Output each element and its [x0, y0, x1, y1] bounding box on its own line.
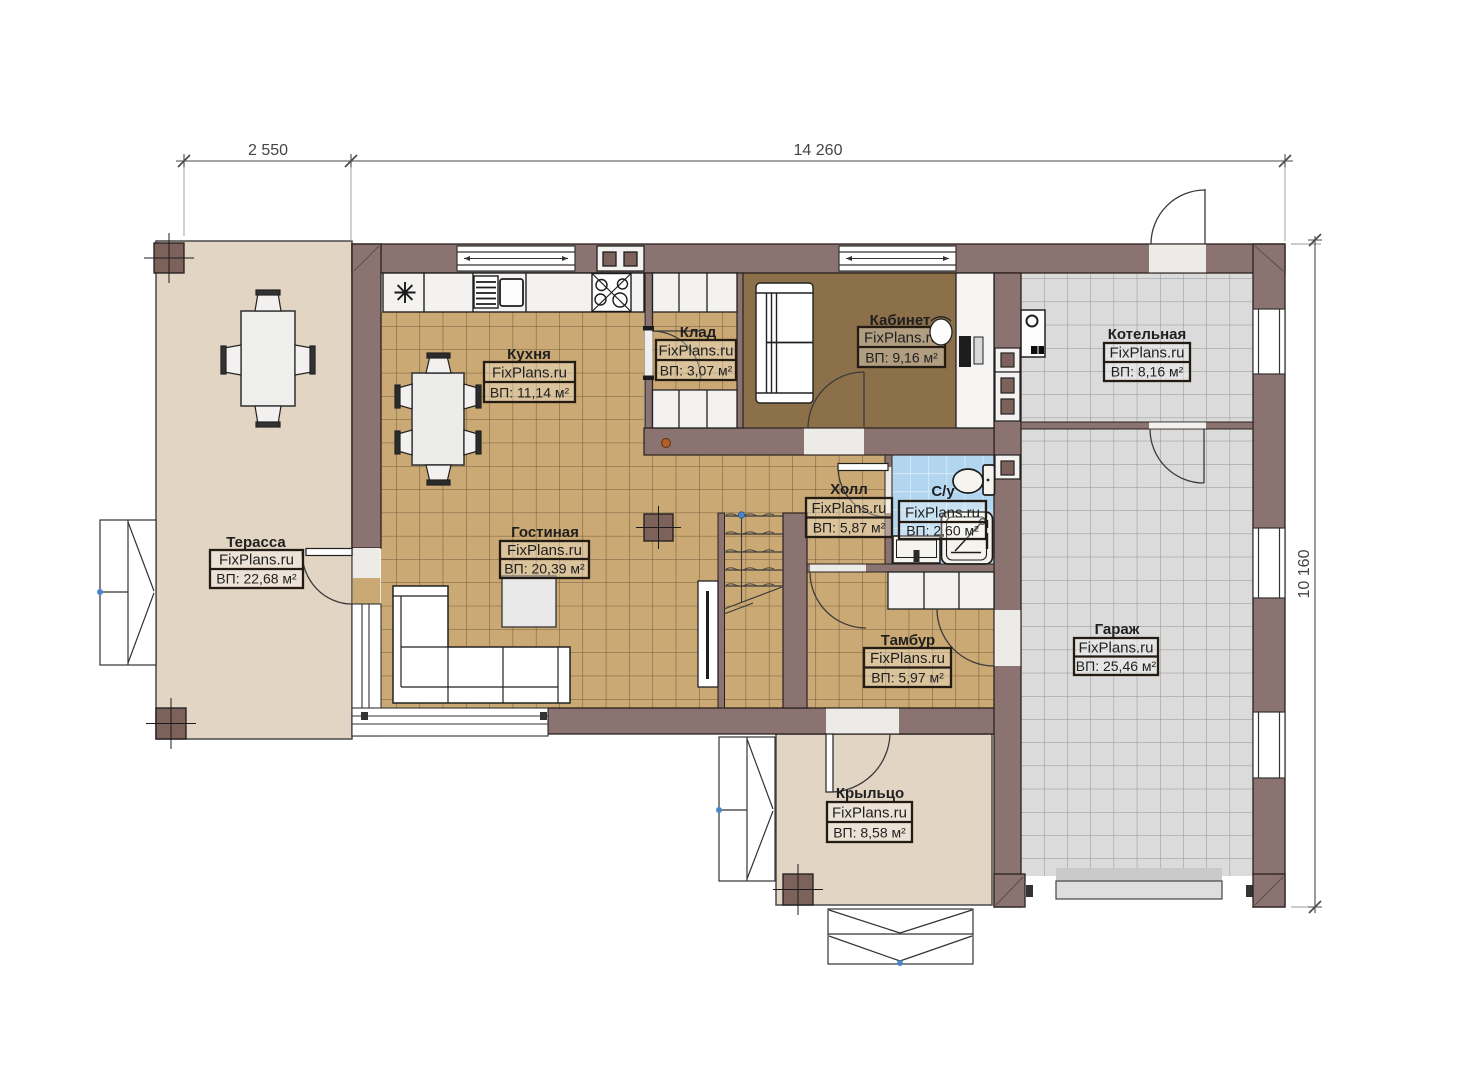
svg-text:Кухня: Кухня [507, 346, 551, 363]
svg-text:FixPlans.ru: FixPlans.ru [219, 552, 294, 569]
svg-text:ВП: 5,97 м²: ВП: 5,97 м² [871, 670, 944, 686]
svg-text:ВП: 22,68 м²: ВП: 22,68 м² [216, 571, 297, 587]
svg-text:FixPlans.ru: FixPlans.ru [811, 500, 886, 517]
svg-text:Гараж: Гараж [1095, 621, 1140, 638]
svg-text:Крыльцо: Крыльцо [836, 785, 904, 802]
svg-text:10 160: 10 160 [1296, 549, 1313, 598]
svg-text:Клад: Клад [680, 324, 717, 341]
svg-text:ВП: 9,16 м²: ВП: 9,16 м² [865, 350, 938, 366]
svg-text:С/у: С/у [931, 483, 955, 500]
svg-text:FixPlans.ru: FixPlans.ru [1109, 345, 1184, 362]
svg-text:FixPlans.ru: FixPlans.ru [905, 505, 980, 522]
svg-text:ВП: 8,58 м²: ВП: 8,58 м² [833, 825, 906, 841]
svg-text:ВП: 25,46 м²: ВП: 25,46 м² [1076, 658, 1157, 674]
svg-text:FixPlans.ru: FixPlans.ru [832, 805, 907, 822]
svg-text:ВП: 2,60 м²: ВП: 2,60 м² [906, 523, 979, 539]
svg-text:2 550: 2 550 [248, 142, 288, 159]
svg-text:FixPlans.ru: FixPlans.ru [507, 542, 582, 559]
svg-text:FixPlans.ru: FixPlans.ru [870, 650, 945, 667]
svg-text:ВП: 20,39 м²: ВП: 20,39 м² [504, 561, 585, 577]
svg-text:FixPlans.ru: FixPlans.ru [864, 330, 939, 347]
svg-text:FixPlans.ru: FixPlans.ru [1078, 640, 1153, 657]
svg-text:14 260: 14 260 [794, 142, 843, 159]
svg-text:ВП: 11,14 м²: ВП: 11,14 м² [490, 385, 570, 401]
svg-text:Тамбур: Тамбур [881, 632, 935, 649]
svg-text:ВП: 3,07 м²: ВП: 3,07 м² [660, 363, 733, 379]
svg-text:Холл: Холл [830, 481, 868, 498]
svg-text:ВП: 5,87 м²: ВП: 5,87 м² [813, 520, 886, 536]
svg-text:FixPlans.ru: FixPlans.ru [658, 343, 733, 360]
svg-text:FixPlans.ru: FixPlans.ru [492, 365, 567, 382]
svg-text:Терасса: Терасса [226, 534, 286, 551]
svg-text:ВП: 8,16 м²: ВП: 8,16 м² [1111, 364, 1184, 380]
svg-text:Гостиная: Гостиная [511, 524, 579, 541]
svg-text:Котельная: Котельная [1108, 326, 1187, 343]
